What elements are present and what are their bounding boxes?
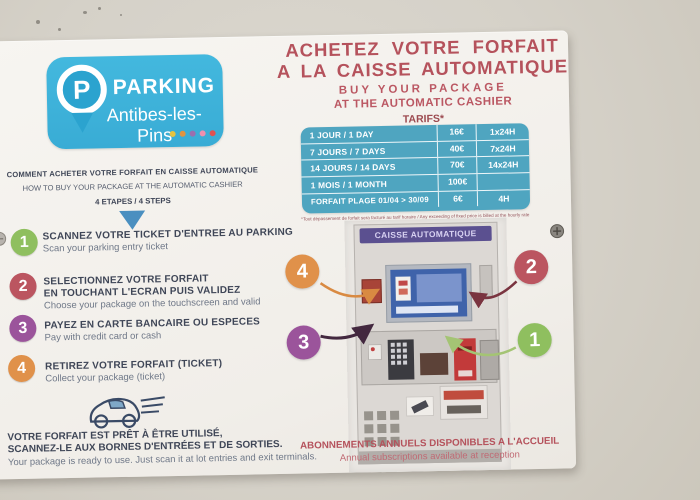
parking-logo: P PARKING Antibes-les-Pins bbox=[46, 54, 224, 149]
screen-dialog-mark bbox=[399, 281, 408, 286]
step-2-text: SELECTIONNEZ VOTRE FORFAIT EN TOUCHANT L… bbox=[43, 270, 374, 312]
intro-line-fr: COMMENT ACHETER VOTRE FORFAIT EN CAISSE … bbox=[0, 165, 276, 180]
tariff-duration: 1x24H bbox=[477, 126, 529, 137]
machine-vent bbox=[479, 265, 493, 297]
tariff-table: 1 JOUR / 1 DAY 16€ 1x24H 7 JOURS / 7 DAY… bbox=[301, 123, 531, 213]
step-4-text: RETIREZ VOTRE FORFAIT (TICKET) Collect y… bbox=[45, 355, 375, 385]
screw-icon bbox=[549, 223, 564, 238]
down-triangle-icon bbox=[119, 211, 145, 230]
cash-module bbox=[480, 340, 500, 380]
callout-1-badge: 1 bbox=[517, 323, 552, 358]
tariff-row-beach-package: FORFAIT PLAGE 01/04 > 30/09 6€ 4H bbox=[302, 189, 530, 210]
steps-count-label: 4 ETAPES / 4 STEPS bbox=[0, 194, 277, 209]
coin-slot bbox=[420, 353, 448, 376]
pin-keypad bbox=[388, 339, 415, 379]
wall-speck bbox=[120, 14, 122, 16]
machine-header: CAISSE AUTOMATIQUE bbox=[360, 226, 492, 244]
screen-toolbar bbox=[396, 306, 458, 314]
wall-speck bbox=[36, 20, 40, 24]
tariff-label: FORFAIT PLAGE 01/04 > 30/09 bbox=[302, 195, 438, 207]
tariff-duration bbox=[478, 181, 530, 182]
tariff-price: 16€ bbox=[437, 124, 477, 140]
car-icon bbox=[85, 392, 168, 434]
logo-brand-text: PARKING bbox=[113, 74, 219, 100]
logo-location-text: Antibes-les-Pins bbox=[89, 103, 220, 147]
step-1-text: SCANNEZ VOTRE TICKET D'ENTREE AU PARKING… bbox=[43, 225, 373, 255]
step-3-badge: 3 bbox=[9, 315, 37, 343]
tariff-label: 14 JOURS / 14 DAYS bbox=[301, 161, 437, 174]
step-3-text: PAYEZ EN CARTE BANCAIRE OU ESPECES Pay w… bbox=[44, 314, 374, 344]
machine-screen-bezel bbox=[385, 263, 472, 323]
cashier-machine: CAISSE AUTOMATIQUE bbox=[353, 222, 502, 465]
cashier-machine-photo: CAISSE AUTOMATIQUE bbox=[344, 218, 511, 473]
offer-title-fr-2: A LA CAISSE AUTOMATIQUE bbox=[276, 55, 568, 83]
tariff-price: 40€ bbox=[437, 141, 477, 157]
step-2-badge: 2 bbox=[9, 273, 37, 301]
tariff-duration: 14x24H bbox=[477, 159, 529, 170]
tariff-duration: 4H bbox=[478, 193, 530, 204]
tariff-label: 7 JOURS / 7 DAYS bbox=[301, 144, 437, 157]
screen-dialog-mark bbox=[399, 289, 408, 295]
help-button bbox=[368, 344, 382, 360]
screen-dialog bbox=[395, 276, 410, 300]
machine-touchscreen bbox=[390, 268, 467, 317]
tariff-label: 1 MOIS / 1 MONTH bbox=[302, 178, 438, 191]
tariff-duration: 7x24H bbox=[477, 143, 529, 154]
callout-3-badge: 3 bbox=[286, 325, 321, 360]
payment-panel bbox=[360, 329, 497, 386]
logo-color-dots bbox=[170, 130, 216, 137]
ticket-scanner bbox=[361, 279, 381, 303]
screen-panel bbox=[416, 273, 462, 302]
card-reader bbox=[454, 338, 477, 380]
screw-icon bbox=[0, 231, 7, 246]
intro-line-en: HOW TO BUY YOUR PACKAGE AT THE AUTOMATIC… bbox=[0, 179, 277, 194]
tariff-price: 100€ bbox=[437, 174, 477, 190]
wall-speck bbox=[83, 11, 87, 14]
photo-of-parking-sign: { "sign": { "logo": { "pin_letter": "P",… bbox=[0, 0, 700, 500]
callout-2-badge: 2 bbox=[514, 250, 549, 285]
tariff-price: 70€ bbox=[437, 158, 477, 174]
tariff-price: 6€ bbox=[438, 191, 478, 207]
wall-speck bbox=[98, 7, 101, 10]
ticket-pictogram bbox=[406, 396, 434, 417]
wall-speck bbox=[58, 28, 61, 31]
tariff-label: 1 JOUR / 1 DAY bbox=[301, 128, 437, 141]
parking-info-sign: P PARKING Antibes-les-Pins COMMENT ACHET… bbox=[0, 30, 576, 479]
step-1-badge: 1 bbox=[10, 229, 38, 257]
ticket-output-slot bbox=[440, 385, 489, 420]
step-4-badge: 4 bbox=[8, 355, 36, 383]
